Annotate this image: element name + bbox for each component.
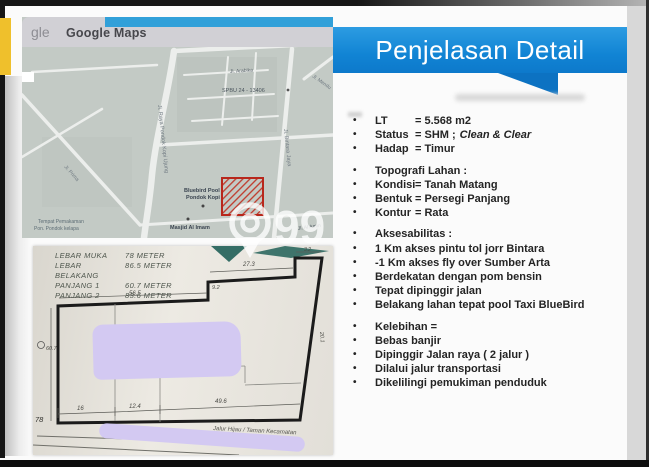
dim-left-side: 60.7 (46, 346, 58, 352)
note-value: 83.6 METER (125, 291, 172, 301)
detail-value: = SHM ; (415, 128, 456, 142)
note-value: 78 METER (125, 251, 165, 261)
detail-value: = Timur (415, 142, 455, 156)
detail-row: 1 Km akses pintu tol jorr Bintara (344, 242, 636, 256)
green-watermark-piece (211, 246, 247, 262)
detail-group-akses: Aksesabilitas : 1 Km akses pintu tol jor… (344, 227, 636, 312)
dim-bottom-2: 12.4 (129, 404, 141, 410)
detail-row: Berdekatan dengan pom bensin (344, 270, 636, 284)
detail-text: Berdekatan dengan pom bensin (375, 270, 636, 284)
detail-value: = Tanah Matang (415, 178, 498, 192)
dim-bottom-3: 49.6 (215, 399, 227, 405)
detail-value: = Persegi Panjang (415, 192, 510, 206)
header-notch (22, 72, 34, 82)
detail-row: Belakang lahan tepat pool Taxi BlueBird (344, 298, 636, 312)
detail-row: Dipinggir Jalan raya ( 2 jalur ) (344, 348, 636, 362)
dim-bottom-1: 16 (77, 406, 84, 412)
detail-text: Bebas banjir (375, 334, 636, 348)
property-marker (222, 178, 263, 215)
banner-tail (498, 73, 558, 95)
detail-row: Kontur = Rata (344, 206, 636, 220)
detail-group-spec: LT = 5.568 m2 Status = SHM ; Clean & Cle… (344, 114, 636, 157)
map-label-cemetery-1: Tempat Pemakaman (38, 219, 84, 225)
detail-list: LT = 5.568 m2 Status = SHM ; Clean & Cle… (344, 114, 636, 398)
detail-text: Dilalui jalur transportasi (375, 362, 636, 376)
dim-top-right: 3.2 (304, 247, 311, 253)
detail-text: Aksesabilitas : (375, 227, 636, 241)
detail-key: Hadap (375, 142, 415, 156)
detail-text: Belakang lahan tepat pool Taxi BlueBird (375, 298, 636, 312)
detail-key: Kondisi (375, 178, 415, 192)
detail-row: Hadap = Timur (344, 142, 636, 156)
redaction-block (92, 321, 241, 380)
detail-key: LT (375, 114, 415, 128)
detail-key: Status (375, 128, 415, 142)
note-row: LEBAR MUKA 78 METER (55, 251, 172, 261)
detail-group-kelebihan: Kelebihan = Bebas banjir Dipinggir Jalan… (344, 320, 636, 391)
map-label-cemetery-2: Pon. Pondok kelapa (34, 226, 79, 232)
detail-key: Bentuk (375, 192, 415, 206)
detail-row: Bentuk = Persegi Panjang (344, 192, 636, 206)
detail-value: = 5.568 m2 (415, 114, 471, 128)
google-logo-fragment: gle (31, 24, 50, 40)
google-maps-photo: Jl. Arabika SPBU 24 - 13406 Bluebird Poo… (22, 17, 333, 238)
map-label-mosque: Masjid Al Imam (170, 225, 210, 231)
top-border (0, 0, 649, 6)
map-canvas: Jl. Arabika SPBU 24 - 13406 Bluebird Poo… (22, 17, 333, 238)
detail-text: Kelebihan = (375, 320, 636, 334)
note-row: PANJANG 2 83.6 METER (55, 291, 172, 301)
note-label: LEBAR BELAKANG (55, 261, 125, 281)
detail-key: Kontur (375, 206, 415, 220)
dim-right-side: 20.1 (318, 331, 325, 343)
note-row: PANJANG 1 60.7 METER (55, 281, 172, 291)
map-label-pool-2: Pondok Kopi (186, 195, 220, 201)
map-label-spbu: SPBU 24 - 13406 (222, 88, 265, 94)
dim-front-left: 78 (35, 415, 44, 424)
detail-text: Dipinggir Jalan raya ( 2 jalur ) (375, 348, 636, 362)
map-label-pool-1: Bluebird Pool (184, 188, 220, 194)
dim-step-right: 27.3 (242, 262, 255, 268)
note-label: PANJANG 2 (55, 291, 125, 301)
erased-smudge (455, 94, 585, 101)
detail-row: Kondisi = Tanah Matang (344, 178, 636, 192)
detail-text: -1 Km akses fly over Sumber Arta (375, 256, 636, 270)
detail-row: -1 Km akses fly over Sumber Arta (344, 256, 636, 270)
handwritten-notes: LEBAR MUKA 78 METER LEBAR BELAKANG 86.5 … (55, 251, 172, 301)
note-value: 60.7 METER (125, 281, 172, 291)
note-label: LEBAR MUKA (55, 251, 125, 261)
note-value: 86.5 METER (125, 261, 172, 281)
bottom-border (0, 460, 649, 467)
detail-value-italic: Clean & Clear (460, 128, 532, 142)
site-plan-photo: 56.5 27.3 9.2 3.2 20.1 60.7 78 16 12.4 4… (33, 246, 333, 455)
detail-value: = Rata (415, 206, 448, 220)
page-title: Penjelasan Detail (375, 35, 584, 66)
yellow-accent-bar (0, 18, 11, 75)
detail-text: Tepat dipinggir jalan (375, 284, 636, 298)
note-row: LEBAR BELAKANG 86.5 METER (55, 261, 172, 281)
detail-text: 1 Km akses pintu tol jorr Bintara (375, 242, 636, 256)
detail-row: Bebas banjir (344, 334, 636, 348)
detail-text: Dikelilingi pemukiman penduduk (375, 376, 636, 390)
dim-step-height: 9.2 (212, 285, 220, 291)
detail-row: Dilalui jalur transportasi (344, 362, 636, 376)
map-top-blue-strip (105, 17, 333, 27)
google-maps-title: Google Maps (66, 26, 147, 40)
detail-banner: Penjelasan Detail (333, 27, 627, 73)
detail-row: Aksesabilitas : (344, 227, 636, 241)
detail-group-topografi: Topografi Lahan : Kondisi = Tanah Matang… (344, 164, 636, 221)
detail-row: Topografi Lahan : (344, 164, 636, 178)
detail-row: Kelebihan = (344, 320, 636, 334)
detail-row: Status = SHM ; Clean & Clear (344, 128, 636, 142)
detail-row: Tepat dipinggir jalan (344, 284, 636, 298)
note-label: PANJANG 1 (55, 281, 125, 291)
detail-row: Dikelilingi pemukiman penduduk (344, 376, 636, 390)
detail-text: Topografi Lahan : (375, 164, 636, 178)
property-slide: Jl. Arabika SPBU 24 - 13406 Bluebird Poo… (0, 0, 649, 467)
detail-row: LT = 5.568 m2 (344, 114, 636, 128)
